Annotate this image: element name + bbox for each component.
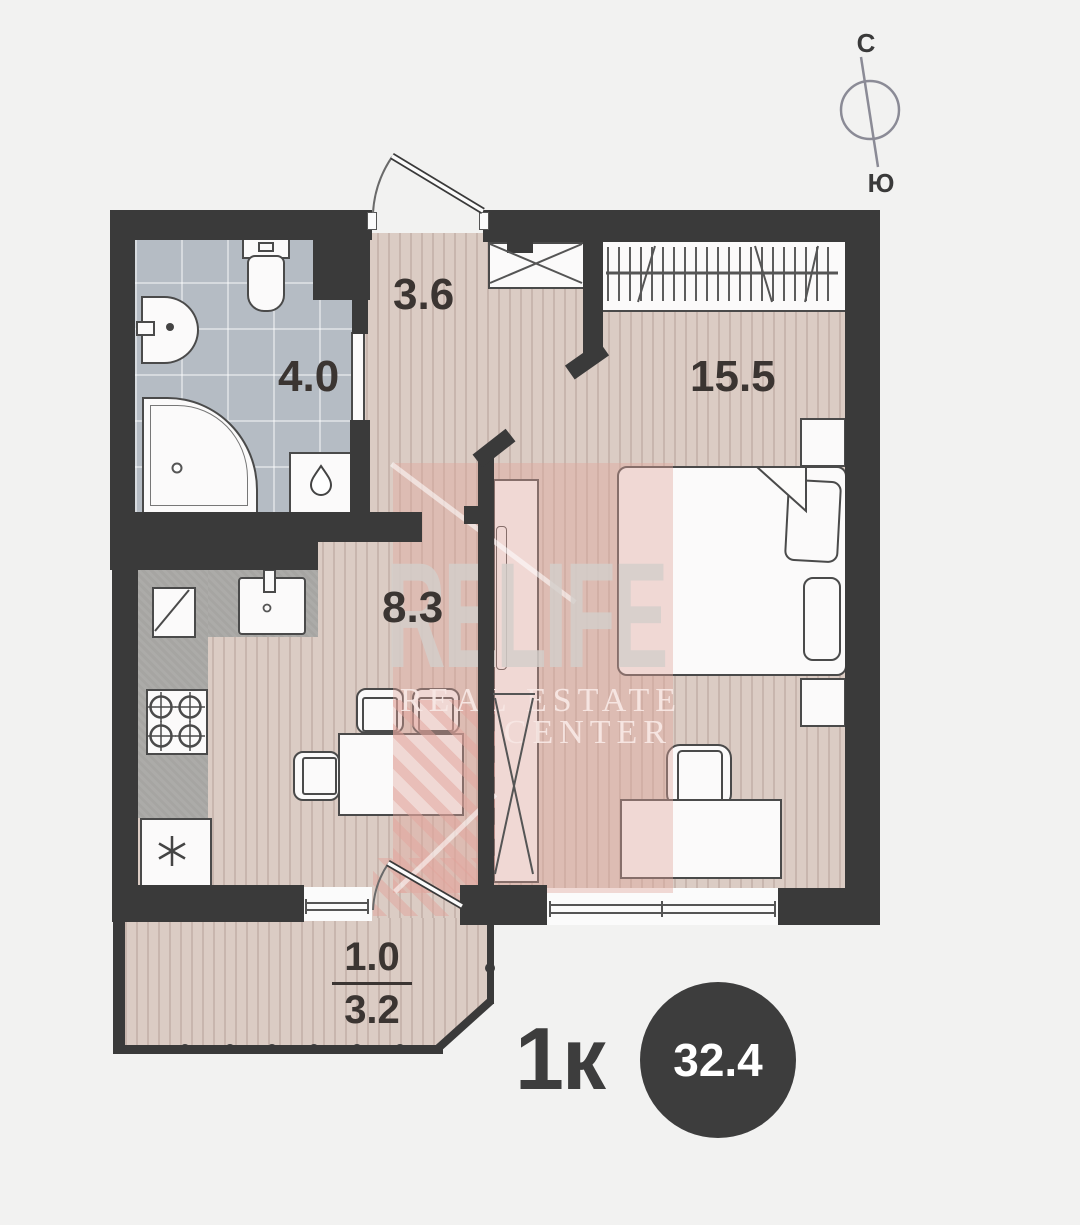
bedroom-area-label: 15.5 xyxy=(690,352,776,402)
bed-blanket-fold xyxy=(757,467,806,511)
hallway-area-label: 3.6 xyxy=(393,270,454,320)
kitchen-window-glazing xyxy=(306,899,368,914)
stove-burners-icon xyxy=(146,692,205,751)
kitchen-area-label: 8.3 xyxy=(382,583,443,633)
balcony-fraction-line xyxy=(332,982,412,985)
kitchen-sink-drain xyxy=(264,605,271,612)
apartment-type-label: 1к xyxy=(515,1008,604,1110)
floor-plan-page: RELIFE REAL ESTATE CENTER xyxy=(0,0,1080,1225)
cutting-board-line xyxy=(155,590,189,631)
droplet-icon xyxy=(311,466,331,495)
tv-unit-cross-icon xyxy=(493,694,535,874)
balcony-door xyxy=(373,863,462,910)
total-area-value: 32.4 xyxy=(673,1033,763,1087)
balcony-area-label: 3.2 xyxy=(330,988,414,1033)
shower-drain xyxy=(173,464,182,473)
bathroom-sink-drain xyxy=(166,323,174,331)
fridge-snowflake-icon xyxy=(159,836,185,866)
bathroom-area-label: 4.0 xyxy=(278,352,339,402)
compass-north-label: С xyxy=(852,28,880,59)
balcony-coef-label: 1.0 xyxy=(330,935,414,980)
shaft-cross-icon xyxy=(490,244,582,283)
entrance-door xyxy=(373,156,483,213)
bedroom-window-glazing xyxy=(550,901,775,917)
compass-south-label: Ю xyxy=(866,168,896,199)
wardrobe-rod-icon xyxy=(606,246,838,302)
compass-icon xyxy=(841,57,899,167)
total-area-badge: 32.4 xyxy=(640,982,796,1138)
